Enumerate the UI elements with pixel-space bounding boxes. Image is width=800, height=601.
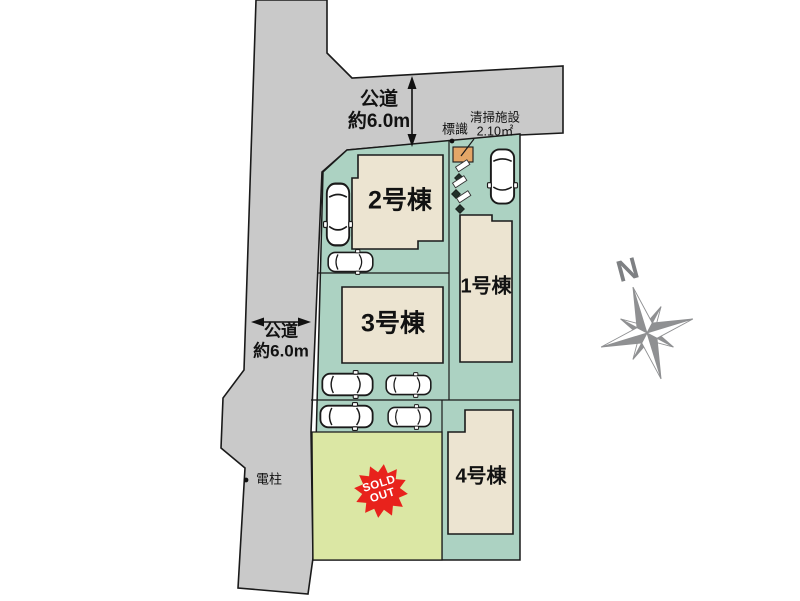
building-1-label: 1号棟 [460, 276, 511, 299]
road-top-name: 公道 [348, 89, 410, 111]
car-icon [328, 250, 373, 275]
cleaning-facility-name: 清掃施設 [470, 111, 520, 125]
site-plan: 公道 約6.0m 公道 約6.0m 標識 清掃施設 2.10㎡ 電柱 2号棟 1… [0, 0, 800, 601]
car-icon [324, 184, 353, 246]
point-dot-icon [450, 139, 455, 144]
road-width-label-top: 公道 約6.0m [348, 89, 410, 133]
utility-pole-label: 電柱 [256, 473, 282, 488]
road-left-width: 約6.0m [253, 341, 309, 361]
car-icon [322, 371, 372, 399]
road-width-label-left: 公道 約6.0m [253, 321, 309, 360]
building-4-label: 4号棟 [455, 466, 506, 489]
road-left-name: 公道 [253, 321, 309, 341]
cleaning-facility-box [453, 147, 473, 162]
point-dot-icon [244, 478, 249, 483]
car-icon [388, 405, 431, 430]
cleaning-facility-label: 清掃施設 2.10㎡ [470, 111, 520, 140]
sign-label: 標識 [442, 123, 468, 138]
car-icon [386, 373, 431, 398]
road-top-width: 約6.0m [348, 111, 410, 133]
compass-rose-icon [587, 273, 707, 393]
cleaning-facility-area: 2.10㎡ [470, 125, 520, 139]
building-2-label: 2号棟 [368, 187, 432, 216]
building-3-label: 3号棟 [361, 310, 425, 339]
car-icon [488, 149, 518, 203]
car-icon [320, 403, 372, 431]
